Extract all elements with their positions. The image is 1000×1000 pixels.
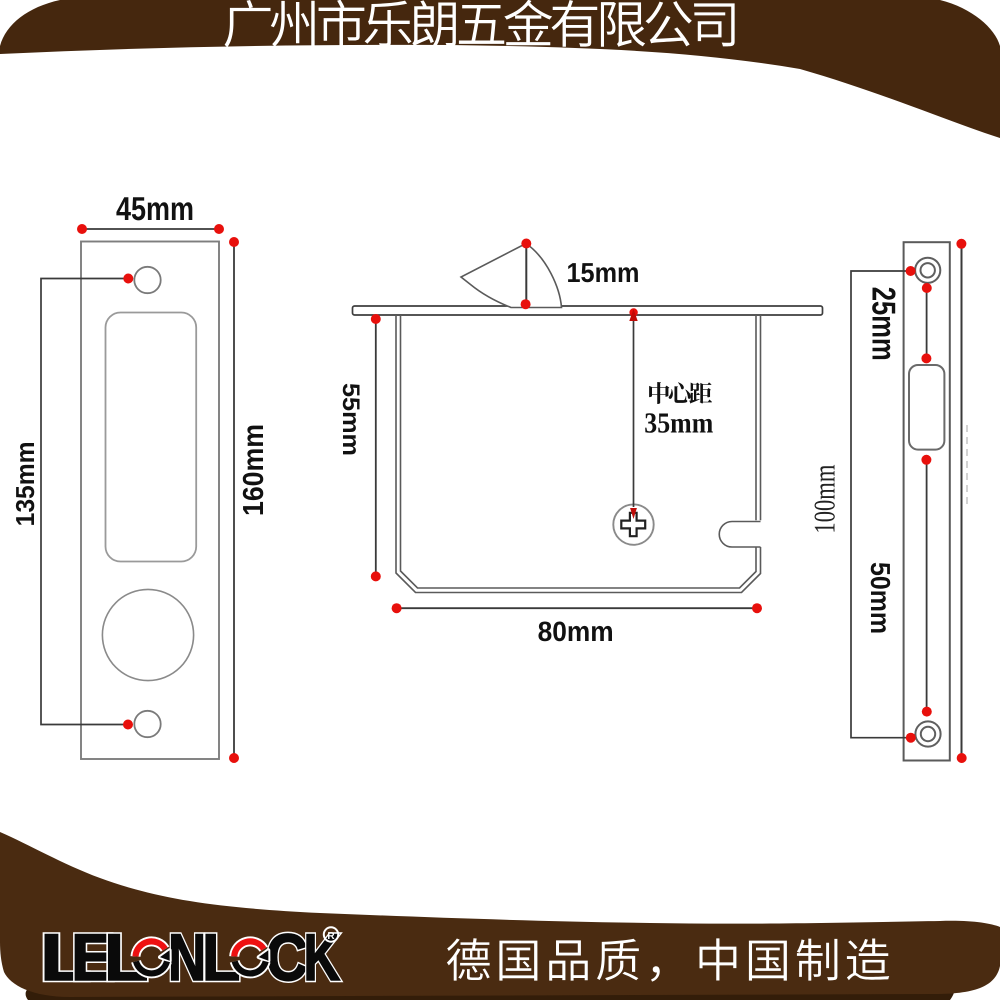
svg-text:C: C xyxy=(266,920,308,994)
svg-text:L: L xyxy=(104,920,148,994)
svg-text:15mm: 15mm xyxy=(567,257,640,288)
svg-text:35mm: 35mm xyxy=(644,407,713,439)
svg-text:45mm: 45mm xyxy=(116,190,194,227)
svg-text:R: R xyxy=(327,931,335,942)
svg-text:80mm: 80mm xyxy=(538,616,614,647)
svg-text:55mm: 55mm xyxy=(337,383,364,456)
svg-text:135mm: 135mm xyxy=(10,441,40,526)
svg-text:K: K xyxy=(304,920,341,994)
svg-text:50mm: 50mm xyxy=(865,562,896,634)
svg-text:L: L xyxy=(202,920,240,994)
svg-text:N: N xyxy=(168,920,206,994)
svg-text:100mm: 100mm xyxy=(809,465,842,534)
svg-text:160mm: 160mm xyxy=(238,424,270,516)
svg-text:25mm: 25mm xyxy=(866,287,903,361)
